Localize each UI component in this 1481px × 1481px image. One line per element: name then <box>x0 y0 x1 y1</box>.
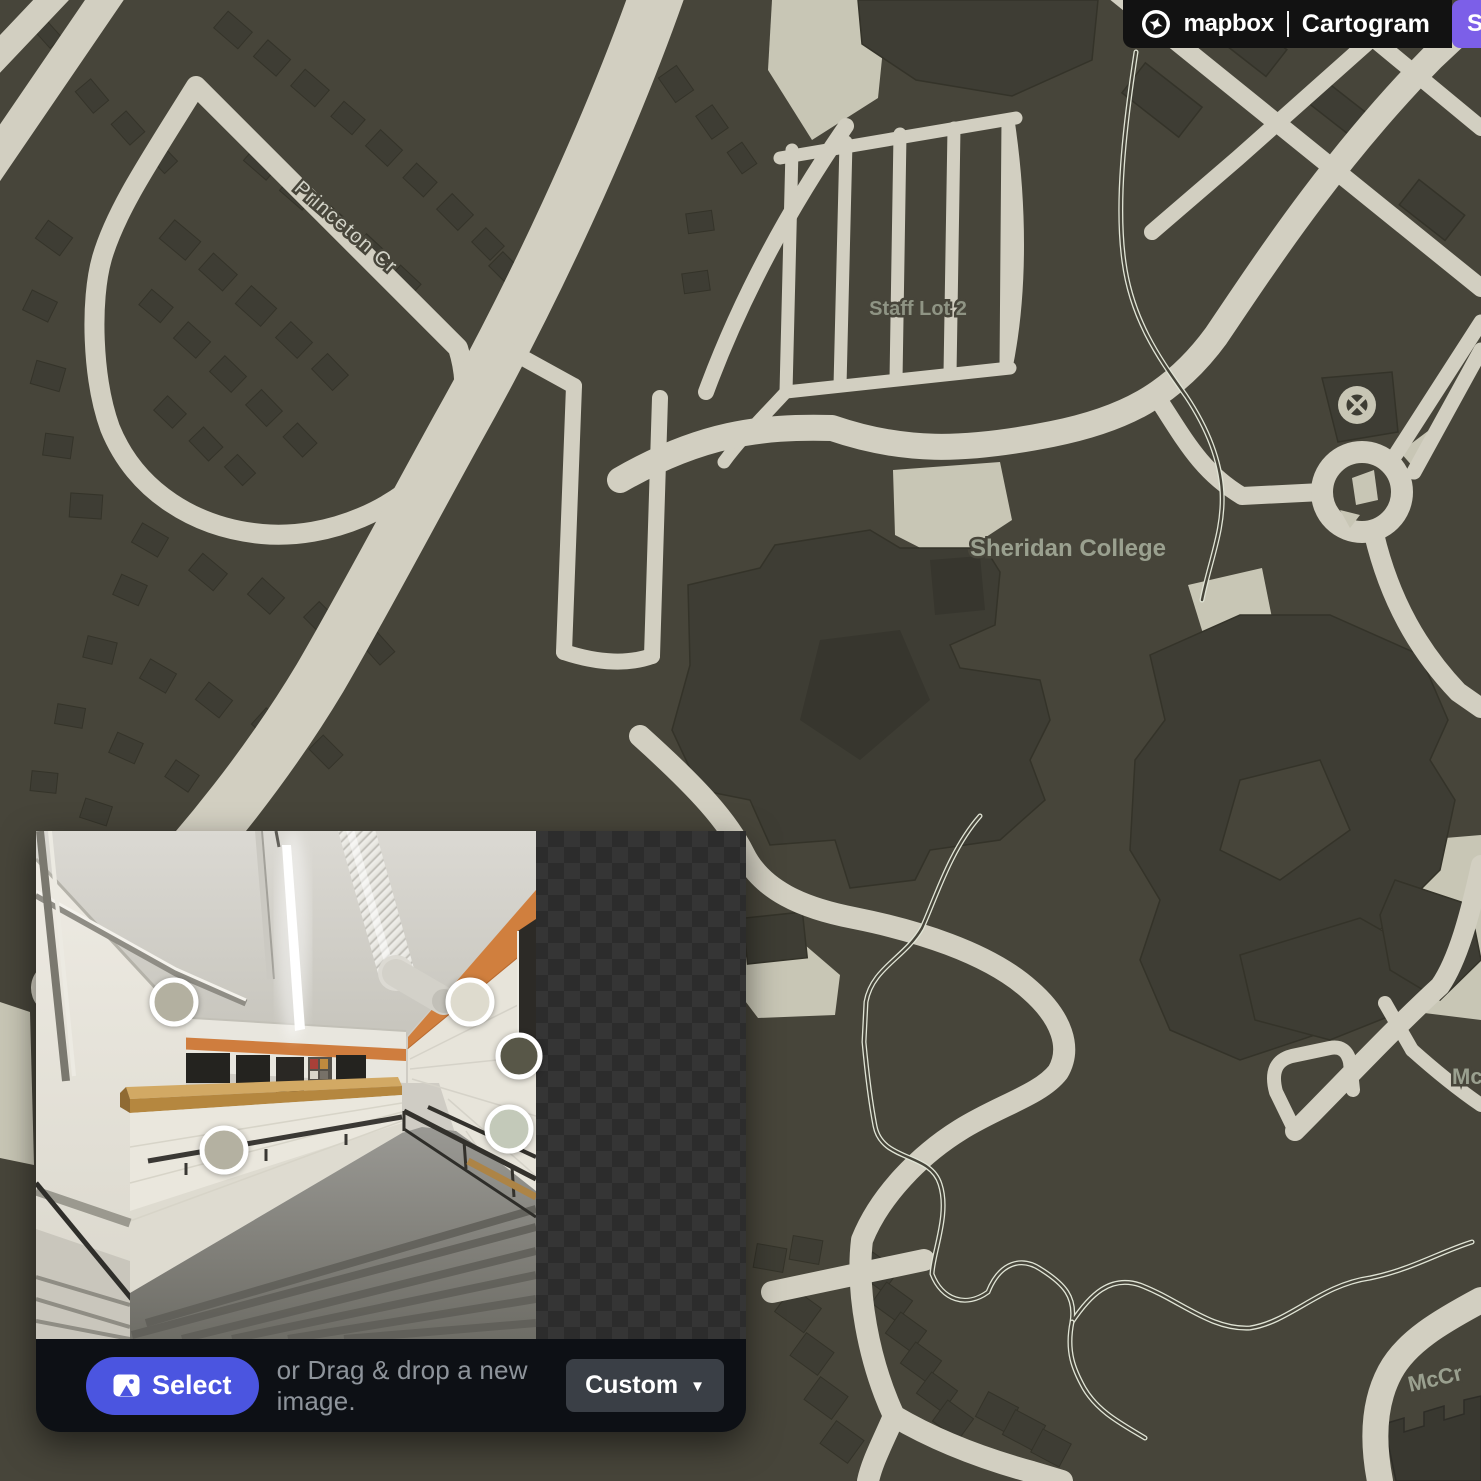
mapbox-cartogram-badge: mapbox Cartogram <box>1123 0 1452 48</box>
image-preview-panel: Select or Drag & drop a new image. Custo… <box>36 831 746 1432</box>
share-button[interactable]: S <box>1452 0 1481 48</box>
cartogram-app: Princeton Cr Staff Lot 2 Sheridan Colleg… <box>0 0 1481 1481</box>
mapbox-logo-icon <box>1141 9 1171 39</box>
chevron-down-icon: ▼ <box>690 1379 705 1394</box>
preset-dropdown-label: Custom <box>585 1371 678 1400</box>
app-title: Cartogram <box>1302 10 1430 39</box>
color-swatch[interactable] <box>448 980 492 1024</box>
color-swatch[interactable] <box>202 1128 246 1172</box>
share-button-label: S <box>1467 10 1481 37</box>
swatch-overlay <box>36 831 746 1339</box>
place-label-staff-lot: Staff Lot 2 <box>869 298 967 320</box>
image-icon <box>113 1374 140 1397</box>
place-label-college: Sheridan College <box>970 535 1166 562</box>
color-swatch[interactable] <box>498 1035 540 1077</box>
select-image-button[interactable]: Select <box>86 1357 259 1415</box>
image-canvas-area <box>36 831 746 1339</box>
image-toolbar: Select or Drag & drop a new image. Custo… <box>36 1339 746 1432</box>
select-button-label: Select <box>152 1370 232 1401</box>
color-swatch[interactable] <box>152 980 196 1024</box>
brand-wordmark: mapbox <box>1184 10 1274 38</box>
drag-drop-hint: or Drag & drop a new image. <box>277 1355 549 1417</box>
brand-divider <box>1287 11 1289 37</box>
street-label-mc: Mc <box>1452 1064 1481 1089</box>
color-swatch[interactable] <box>487 1107 531 1151</box>
preset-dropdown[interactable]: Custom ▼ <box>566 1359 724 1412</box>
